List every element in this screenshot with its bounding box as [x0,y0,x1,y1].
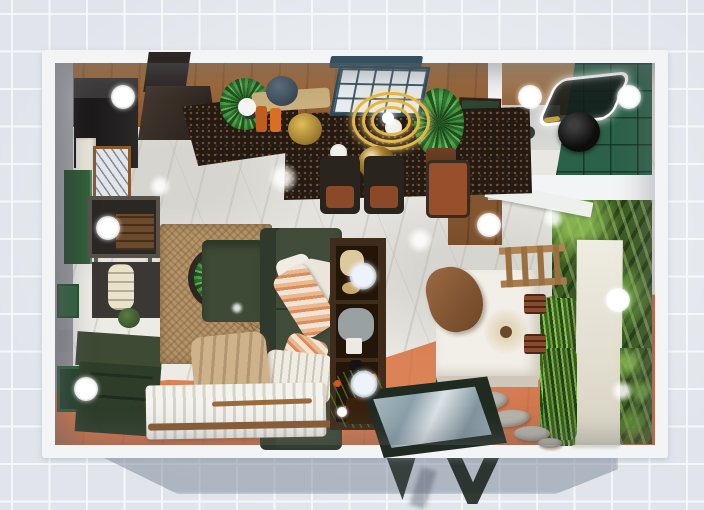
hotspot-dot[interactable] [351,371,378,398]
hotspot-dot[interactable] [477,213,501,237]
floorplan-viewport[interactable] [0,0,704,510]
hotspot-dot[interactable] [96,216,120,240]
hotspot-dot[interactable] [350,263,377,290]
hotspot-dot[interactable] [111,85,135,109]
hotspot-dot[interactable] [518,85,542,109]
hotspot-dot[interactable] [74,377,98,401]
hotspot-dot[interactable] [617,85,641,109]
hotspot-dot[interactable] [606,288,630,312]
hotspot-layer [0,0,704,510]
